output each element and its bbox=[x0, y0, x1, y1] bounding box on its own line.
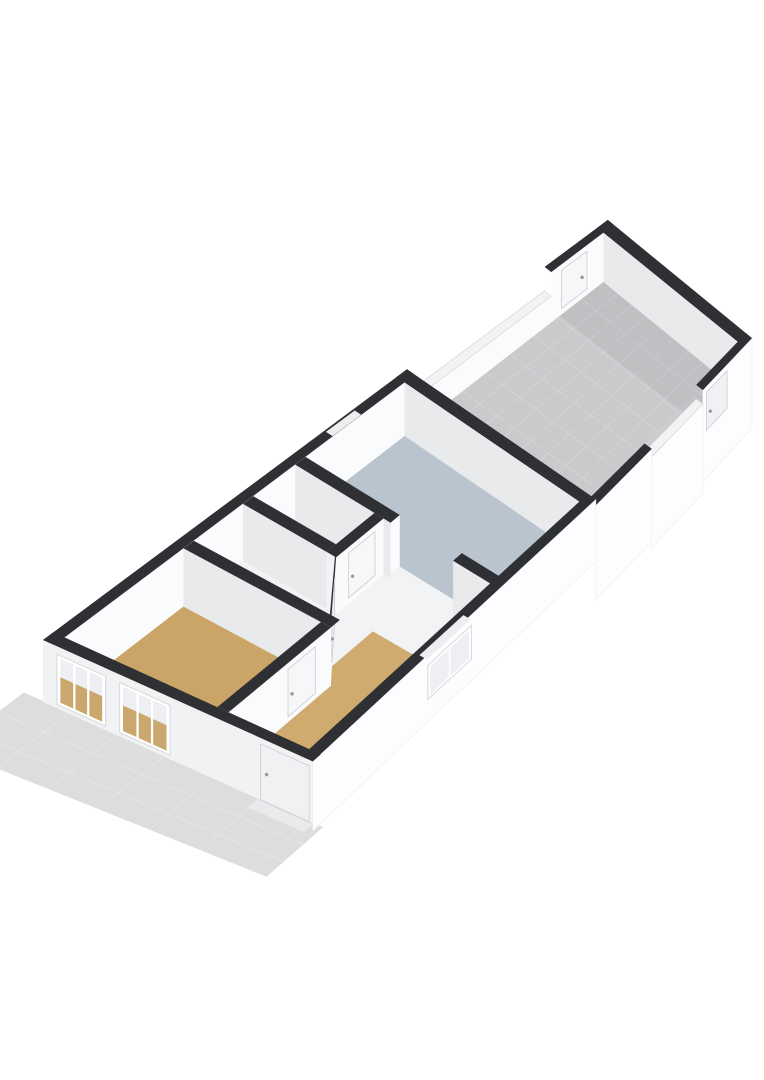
floorplan-3d-render bbox=[0, 0, 764, 1080]
floorplan-page bbox=[0, 0, 764, 1080]
